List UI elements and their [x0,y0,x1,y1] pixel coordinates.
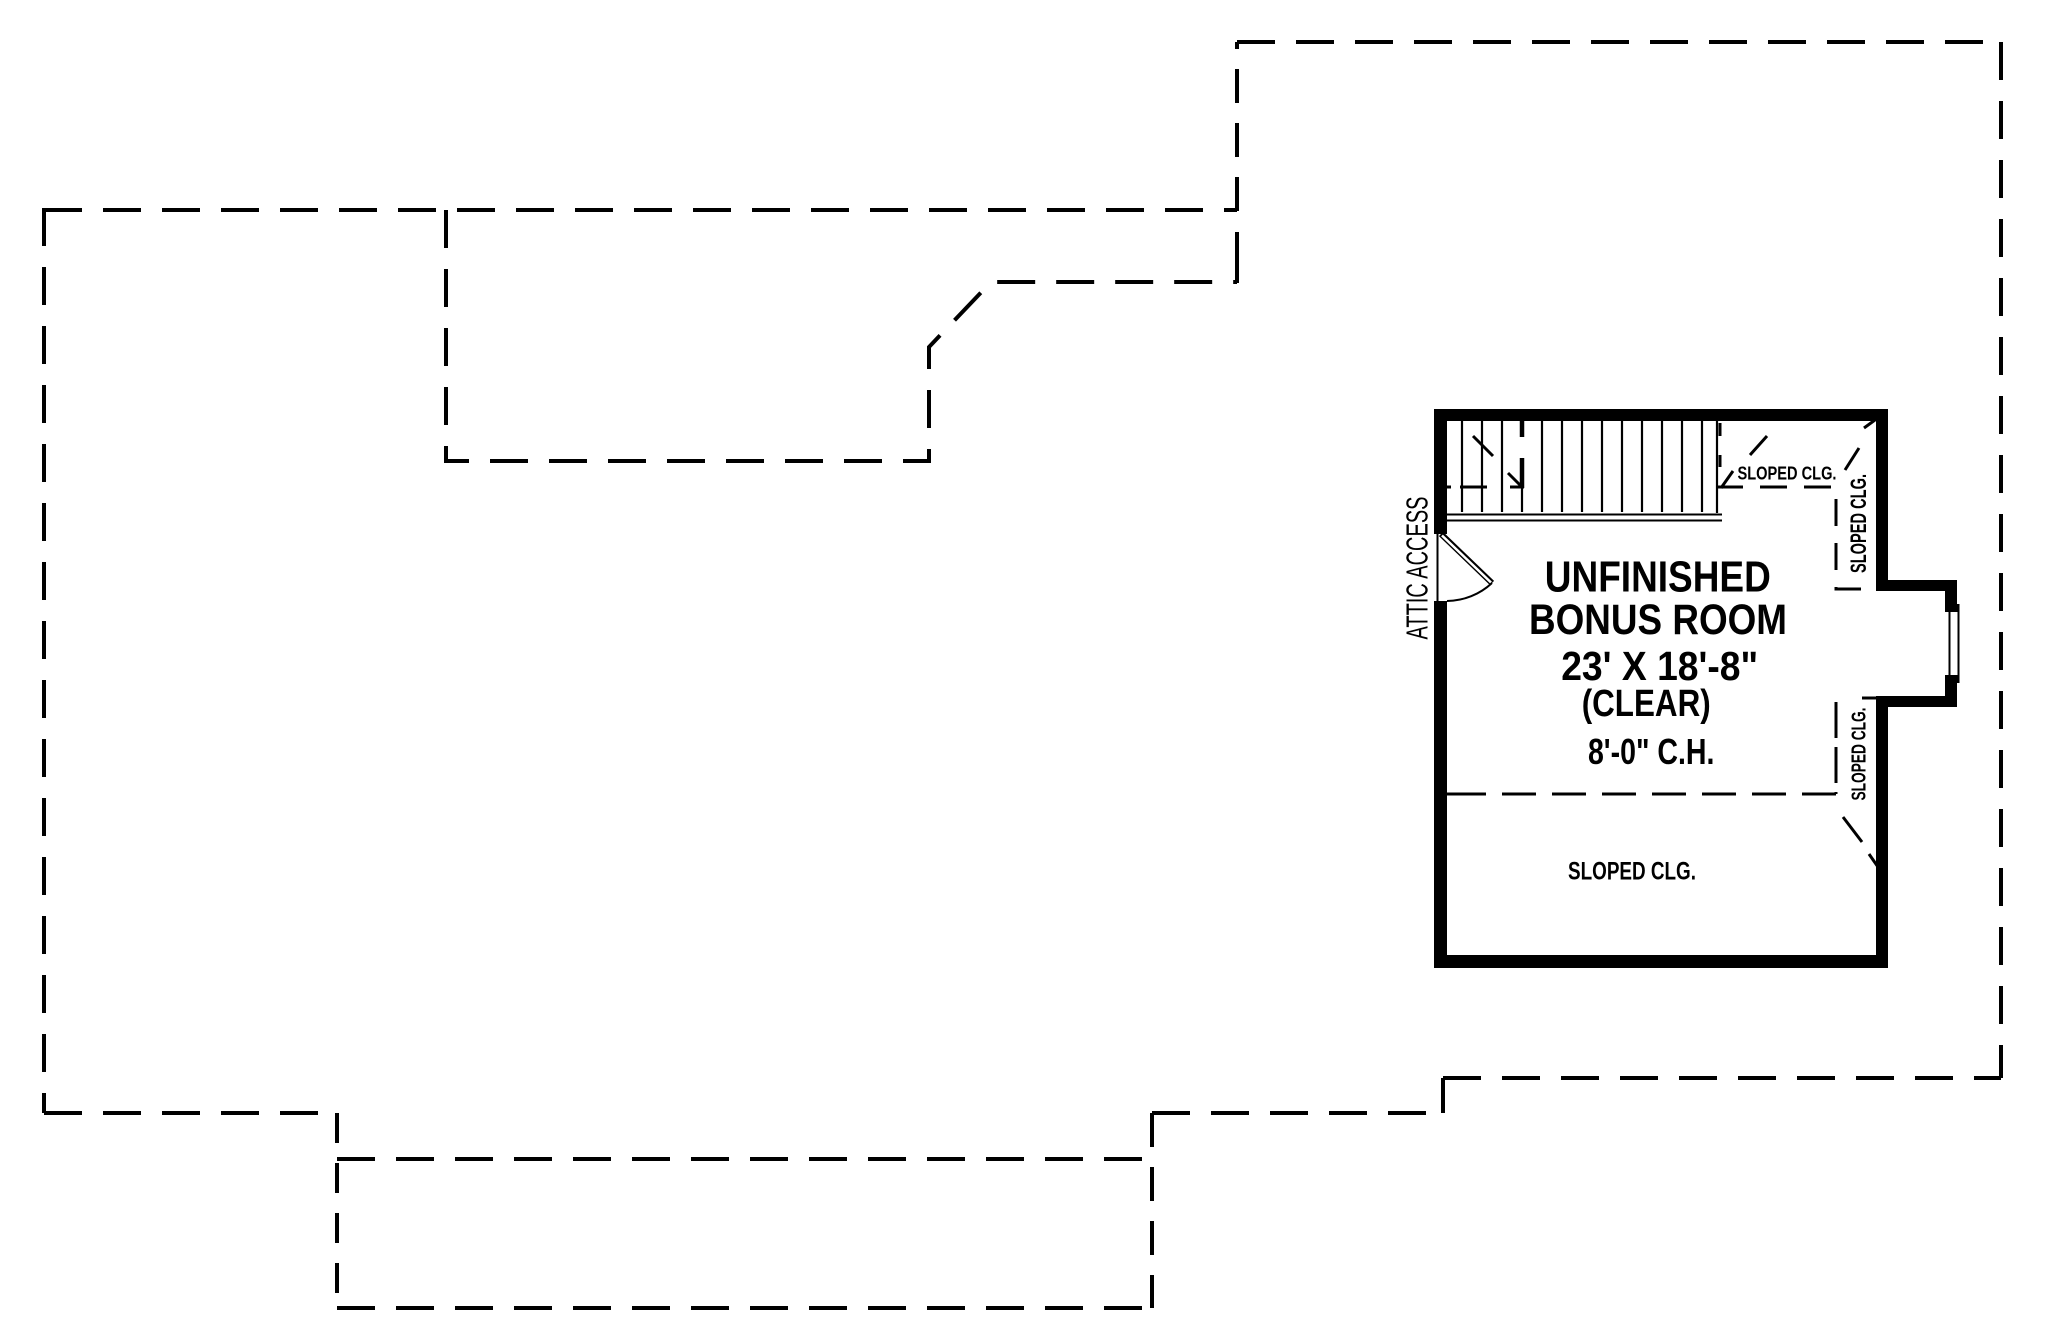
svg-text:SLOPED CLG.: SLOPED CLG. [1849,708,1871,801]
svg-text:SLOPED CLG.: SLOPED CLG. [1568,858,1696,886]
svg-text:ATTIC ACCESS: ATTIC ACCESS [1400,497,1435,640]
svg-text:(CLEAR): (CLEAR) [1582,683,1711,725]
svg-text:SLOPED CLG.: SLOPED CLG. [1738,463,1837,484]
svg-text:UNFINISHED: UNFINISHED [1545,552,1771,601]
svg-text:SLOPED CLG.: SLOPED CLG. [1846,474,1871,573]
svg-text:8'-0" C.H.: 8'-0" C.H. [1588,731,1715,772]
svg-text:BONUS ROOM: BONUS ROOM [1529,596,1787,644]
